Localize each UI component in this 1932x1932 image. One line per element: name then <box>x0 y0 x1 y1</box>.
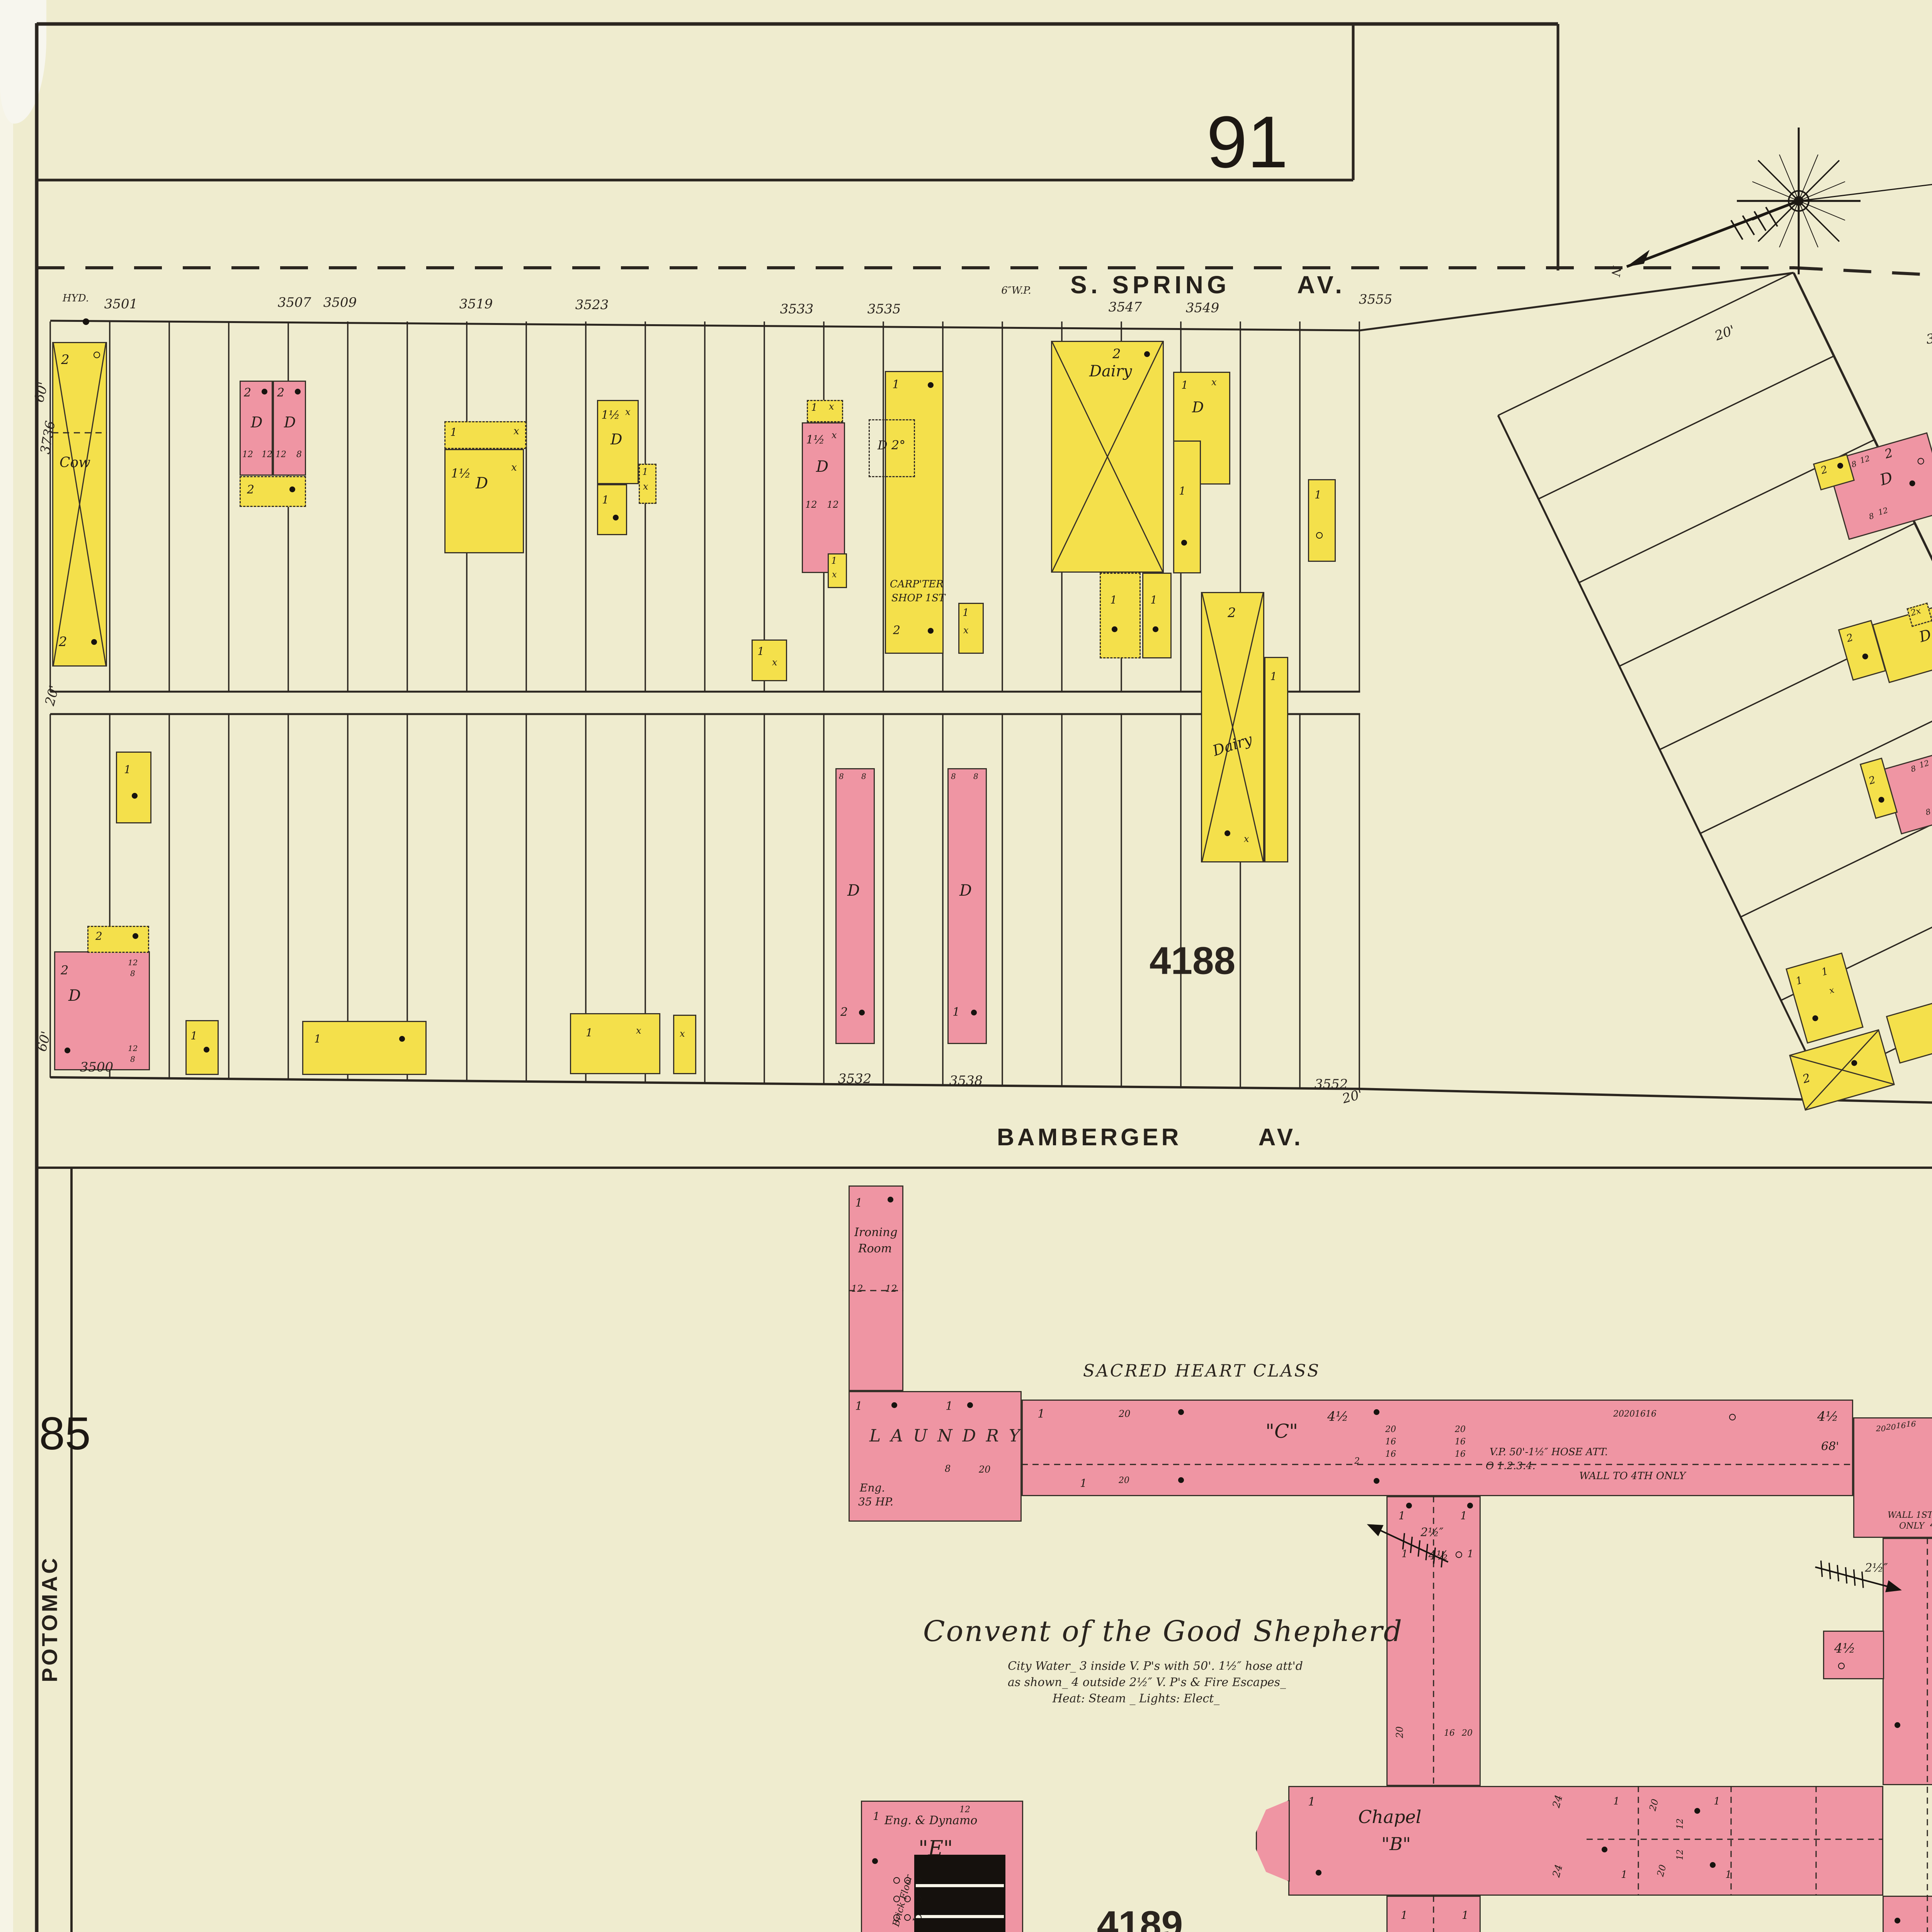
vent-circle <box>904 1914 911 1921</box>
map-text: 2½″ <box>1865 1561 1888 1575</box>
map-text: 3509 <box>323 295 357 310</box>
interior-wall-lines <box>0 0 1932 1932</box>
map-text: 3535 <box>867 301 901 317</box>
map-text: 3500 <box>80 1060 114 1075</box>
map-text: 3532 <box>838 1071 872 1087</box>
map-text: 3507 <box>278 295 311 310</box>
vent-circle <box>904 1877 911 1884</box>
map-text: L A U N D R Y <box>869 1426 1022 1446</box>
map-text: SACRED HEART CLASS <box>1083 1361 1320 1381</box>
sanborn-map-sheet: 2Cow22D12122D12821x1½Dx1½xD11x1x1x1½xD12… <box>0 0 1932 1932</box>
map-text: 3501 <box>104 296 138 312</box>
map-text: 3519 <box>459 296 493 312</box>
vent-circle <box>893 1914 900 1921</box>
vent-circle <box>893 1877 900 1884</box>
vent-circle <box>915 1877 922 1884</box>
map-text: 6″W.P. <box>1001 285 1031 296</box>
map-text: 3523 <box>575 297 609 313</box>
map-text: 2½″ <box>1420 1526 1443 1539</box>
map-text: 3538 <box>949 1073 983 1088</box>
vent-circle <box>904 1896 911 1902</box>
vent-circle <box>915 1896 922 1902</box>
map-text: 4189 <box>1097 1903 1183 1932</box>
vent-circle <box>915 1914 922 1921</box>
map-text: 4188 <box>1150 939 1235 983</box>
map-text: 3549 <box>1186 300 1219 316</box>
map-text: 3533 <box>780 301 814 317</box>
vent-circle <box>893 1896 900 1902</box>
boiler-icon <box>914 1855 1005 1932</box>
map-text: HYD. <box>63 293 89 304</box>
compass-rose-icon <box>1604 112 1932 278</box>
map-text: 3555 <box>1359 292 1393 307</box>
map-text: 3552 <box>1315 1077 1348 1092</box>
map-text: 3547 <box>1109 299 1142 315</box>
hydrant-dot <box>83 318 89 325</box>
